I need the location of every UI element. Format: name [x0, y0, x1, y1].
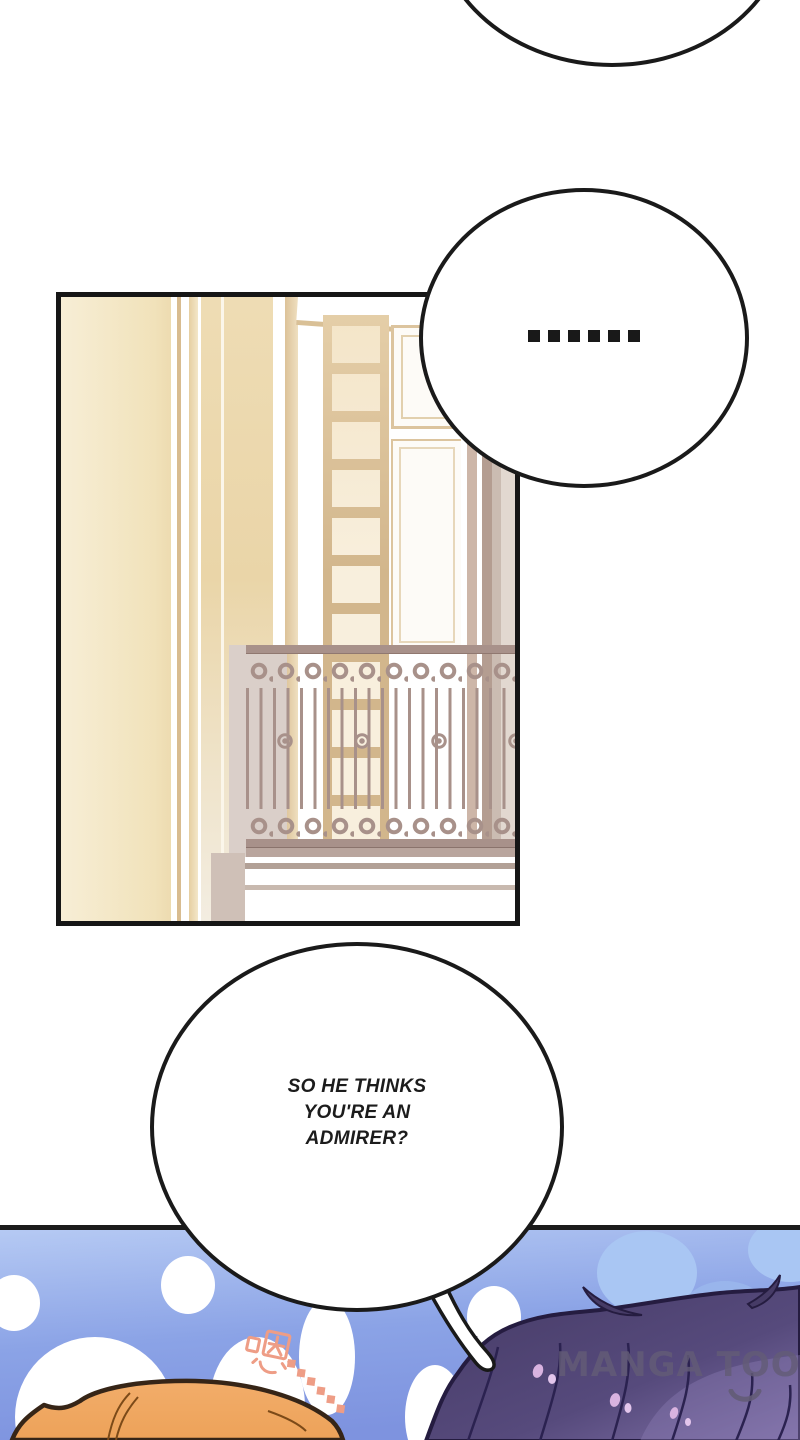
watermark: MANGA TOON	[556, 1348, 800, 1382]
railing-top-rail	[246, 645, 516, 654]
wall-highlight-line	[221, 297, 224, 921]
balcony-ledge-column	[211, 853, 245, 921]
speech-bubble-question-text: SO HE THINKS YOU'RE AN ADMIRER?	[288, 1074, 427, 1152]
railing-scrollwork-lower	[246, 809, 516, 839]
watermark-text: MANGA TOON	[556, 1345, 800, 1385]
railing-base-rail	[246, 839, 516, 847]
wall-trim-line	[189, 297, 198, 921]
railing-base-ledge	[246, 847, 516, 857]
comic-page[interactable]: MANGA TOON SO HE THINKS YOU'RE AN ADMIRE…	[0, 0, 800, 1440]
speech-bubble-question: SO HE THINKS YOU'RE AN ADMIRER?	[150, 942, 564, 1312]
railing-medallions	[246, 728, 516, 754]
smiley-icon	[728, 1389, 762, 1405]
railing-scrollwork-upper	[246, 654, 516, 688]
wall-trim-line	[177, 297, 181, 921]
ellipsis-dots	[528, 330, 640, 342]
door-panel-lower	[391, 439, 463, 651]
wall-cream	[61, 297, 171, 921]
balcony-ledge	[245, 857, 515, 921]
balcony-railing	[246, 645, 516, 857]
speech-bubble-top	[433, 0, 791, 67]
window-pane-tint	[323, 315, 389, 575]
